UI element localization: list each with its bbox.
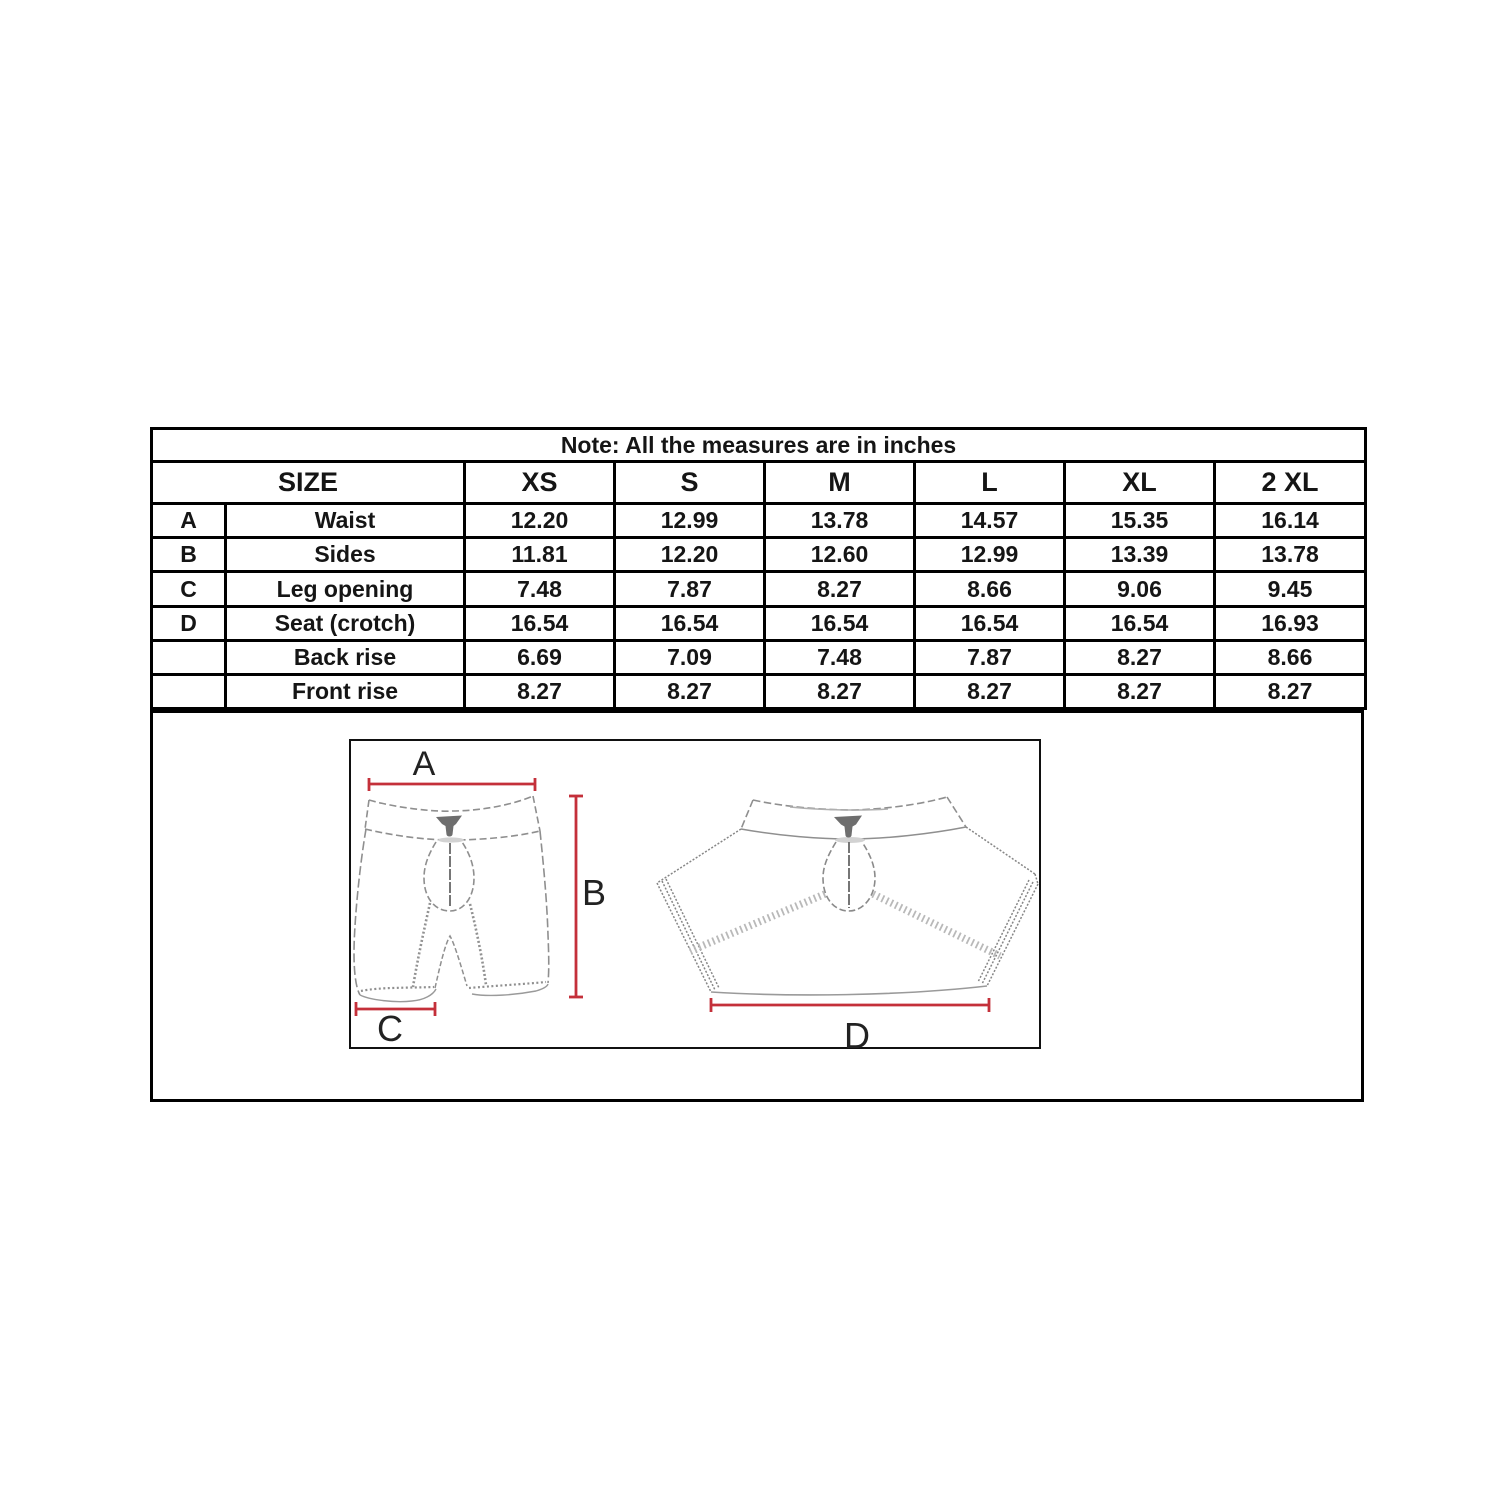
svg-text:C: C [377,1008,403,1049]
svg-text:D: D [844,1015,870,1056]
svg-text:B: B [582,872,606,913]
svg-text:A: A [413,745,436,783]
